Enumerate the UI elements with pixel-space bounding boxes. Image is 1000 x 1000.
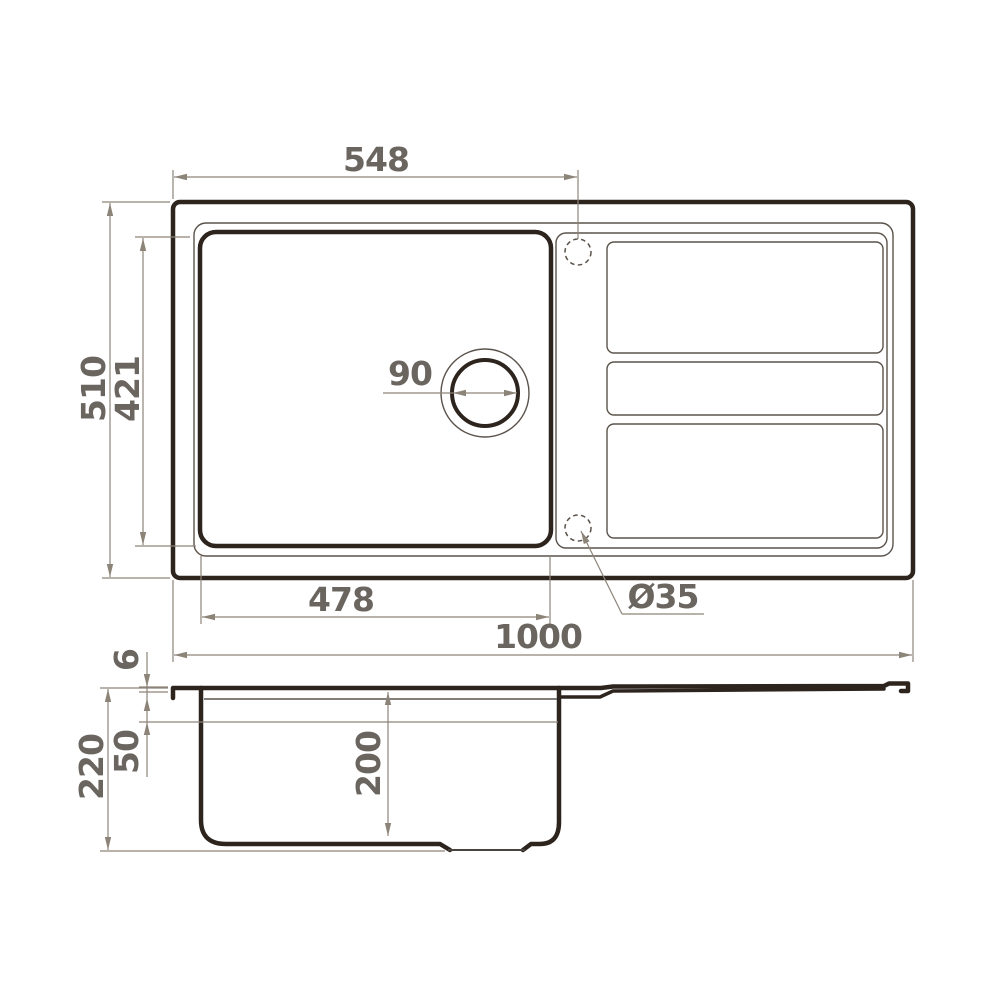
- dim-90-arrow-left: [453, 390, 466, 396]
- bowl-outline: [200, 232, 551, 546]
- dim-200-label: 200: [349, 731, 388, 797]
- dim-90-label: 90: [388, 354, 432, 393]
- sink-technical-drawing: 548 510 421 90: [0, 0, 1000, 1000]
- dim-548: 548: [173, 140, 578, 239]
- drawing-canvas: 548 510 421 90: [0, 0, 1000, 1000]
- dim-510-arrow-bottom: [107, 564, 113, 577]
- dim-478: 478: [201, 556, 550, 624]
- dim-510-arrow-top: [107, 203, 113, 216]
- dim-dia35: Ø35: [578, 530, 704, 616]
- dim-6-label: 6: [107, 649, 146, 671]
- dim-200: 200: [349, 692, 391, 836]
- dim-200-arrow-bottom: [385, 823, 391, 836]
- dim-1000-label: 1000: [494, 617, 582, 656]
- dim-6-arrow-down: [144, 674, 150, 687]
- dim-1000: 1000: [173, 580, 913, 662]
- dim-548-arrow-left: [174, 174, 187, 180]
- sink-outer-edge: [173, 202, 913, 578]
- dim-dia35-label: Ø35: [628, 577, 699, 616]
- dim-421-arrow-bottom: [140, 532, 146, 545]
- dim-421-arrow-top: [140, 238, 146, 251]
- section-view: [173, 684, 908, 851]
- tap-hole-top: [565, 239, 591, 265]
- dim-548-label: 548: [343, 140, 409, 179]
- dim-220-arrow-top: [105, 689, 111, 702]
- drainboard-ridge-bottom: [607, 424, 883, 538]
- rim-inner-edge: [194, 223, 893, 556]
- drainboard-ridge-middle: [607, 362, 883, 415]
- drainboard-ridge-top: [607, 242, 883, 353]
- dim-50-label: 50: [107, 730, 146, 774]
- top-view: [173, 202, 913, 578]
- dim-6-arrow-up: [144, 698, 150, 711]
- dim-220-label: 220: [72, 734, 111, 800]
- tap-hole-bottom: [565, 515, 591, 541]
- section-deck-step: [559, 689, 884, 697]
- dim-478-label: 478: [308, 580, 374, 619]
- dim-50: 50: [107, 722, 558, 774]
- drainboard-recess: [556, 233, 887, 548]
- dim-220-arrow-bottom: [105, 837, 111, 850]
- dim-421: 421: [108, 237, 196, 546]
- dim-90-arrow-right: [504, 390, 517, 396]
- dim-421-label: 421: [108, 356, 147, 422]
- dim-dia35-leader: [581, 531, 622, 614]
- dim-1000-arrow-left: [174, 652, 187, 658]
- dim-1000-arrow-right: [899, 652, 912, 658]
- dim-548-arrow-right: [564, 174, 577, 180]
- dim-478-arrow-left: [202, 614, 215, 620]
